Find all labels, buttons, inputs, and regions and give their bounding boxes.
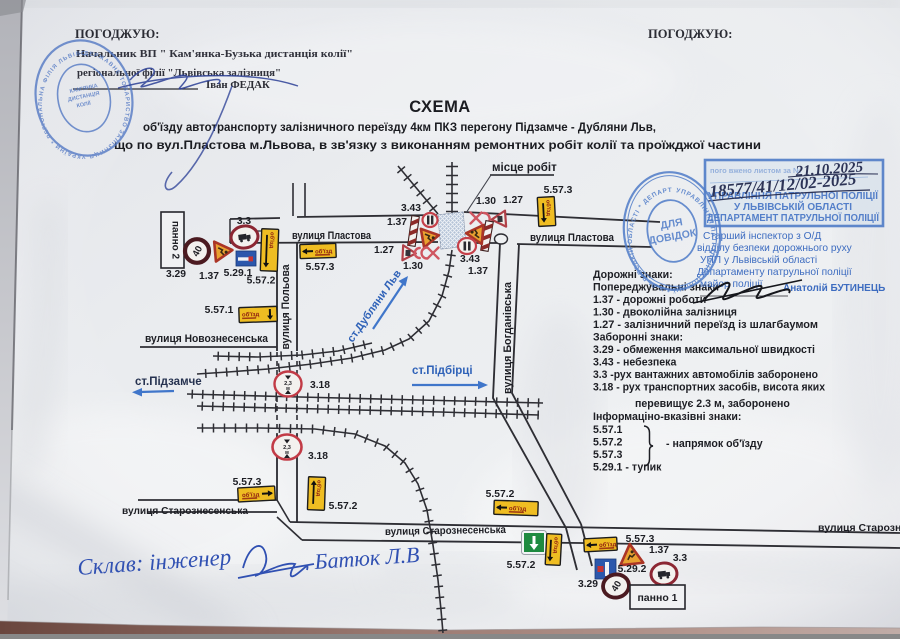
svg-text:5.29.1 - тупик: 5.29.1 - тупик <box>593 462 662 474</box>
svg-text:5.57.2: 5.57.2 <box>329 501 358 512</box>
svg-text:5.57.3: 5.57.3 <box>306 262 335 273</box>
svg-text:5.57.1: 5.57.1 <box>205 305 234 316</box>
svg-text:У ЛЬВІВСЬКІЙ ОБЛАСТІ: У ЛЬВІВСЬКІЙ ОБЛАСТІ <box>734 201 852 213</box>
svg-text:об'їзд: об'їзд <box>552 537 560 554</box>
svg-text:1.27: 1.27 <box>503 195 523 206</box>
svg-text:ст.Підзамче: ст.Підзамче <box>135 376 202 388</box>
svg-text:об'їзду автотранспорту залізн: об'їзду автотранспорту залізничного пере… <box>143 120 656 134</box>
svg-text:3.3: 3.3 <box>673 553 688 564</box>
svg-text:5.57.2: 5.57.2 <box>247 276 276 287</box>
svg-text:1.37: 1.37 <box>649 545 669 556</box>
svg-text:ДЕПАРТАМЕНТ ПАТРУЛЬНОЇ ПОЛІЦІЇ: ДЕПАРТАМЕНТ ПАТРУЛЬНОЇ ПОЛІЦІЇ <box>707 213 879 224</box>
svg-text:що по вул.Пластова м.Львова,: що по вул.Пластова м.Львова, в зв'язку з… <box>114 138 761 152</box>
svg-text:1.30: 1.30 <box>403 261 423 272</box>
svg-text:вулиця Польова: вулиця Польова <box>280 264 292 350</box>
svg-text:- напрямок об'їзду: - напрямок об'їзду <box>666 438 763 450</box>
svg-text:5.57.2: 5.57.2 <box>593 437 623 449</box>
svg-text:3.29: 3.29 <box>578 579 598 590</box>
svg-text:панно 1: панно 1 <box>637 592 677 604</box>
svg-text:3.29 - обмеження максимальної: 3.29 - обмеження максимальної швидкості <box>593 344 815 356</box>
svg-text:СХЕМА: СХЕМА <box>409 98 470 116</box>
svg-text:1.37: 1.37 <box>468 266 488 277</box>
svg-text:5.29.2: 5.29.2 <box>618 564 647 575</box>
svg-text:вулиця Пластова: вулиця Пластова <box>530 232 615 244</box>
svg-text:ПОГОДЖУЮ:: ПОГОДЖУЮ: <box>75 27 159 41</box>
svg-text:місце робіт: місце робіт <box>492 162 557 174</box>
svg-text:5.57.3: 5.57.3 <box>544 185 573 196</box>
svg-text:5.57.2: 5.57.2 <box>486 489 515 500</box>
svg-text:3.29: 3.29 <box>166 269 186 280</box>
svg-text:1.37: 1.37 <box>387 217 407 228</box>
svg-text:1.30: 1.30 <box>476 196 496 207</box>
svg-text:ПОГОДЖУЮ:: ПОГОДЖУЮ: <box>648 27 732 41</box>
svg-text:Анатолій БУТИНЕЦЬ: Анатолій БУТИНЕЦЬ <box>783 283 885 294</box>
svg-text:3.18: 3.18 <box>308 451 328 462</box>
svg-text:вулиця Старознесенська: вулиця Старознесенська <box>385 524 506 538</box>
svg-text:ст.Підбірці: ст.Підбірці <box>412 365 473 377</box>
svg-text:3.3 -рух вантажних автомобілів: 3.3 -рух вантажних автомобілів заборонен… <box>593 369 819 381</box>
svg-text:3.43: 3.43 <box>460 254 480 265</box>
svg-text:3.18 - рух транспортних засобі: 3.18 - рух транспортних засобів, висота … <box>593 382 825 394</box>
svg-text:об'їзд: об'їзд <box>315 480 323 497</box>
svg-text:1.37 - дорожні роботи: 1.37 - дорожні роботи <box>593 294 706 306</box>
svg-text:вулиця Пластова: вулиця Пластова <box>292 230 372 242</box>
svg-text:вулиця Богданівська: вулиця Богданівська <box>502 281 514 394</box>
svg-text:вулиця Старознесенська: вулиця Старознесенська <box>122 505 248 517</box>
svg-text:панно 2: панно 2 <box>170 221 181 260</box>
svg-text:пого вжено листом за №: пого вжено листом за № <box>710 166 801 175</box>
svg-text:5.57.1: 5.57.1 <box>593 424 623 436</box>
svg-text:Інформаціно-вказівні знаки:: Інформаціно-вказівні знаки: <box>593 411 741 423</box>
svg-text:перевищує 2.3 м, заборонено: перевищує 2.3 м, заборонено <box>635 398 790 410</box>
svg-text:вулиця Новознесенська: вулиця Новознесенська <box>145 333 269 345</box>
svg-text:5.57.2: 5.57.2 <box>507 560 536 571</box>
svg-text:1.27: 1.27 <box>374 245 394 256</box>
svg-text:Іван ФЕДАК: Іван ФЕДАК <box>206 79 270 91</box>
svg-text:Дорожні знаки:: Дорожні знаки: <box>593 269 673 281</box>
svg-text:5.57.3: 5.57.3 <box>593 449 623 461</box>
svg-text:3.18: 3.18 <box>310 380 330 391</box>
svg-text:1.37: 1.37 <box>199 271 219 282</box>
svg-text:Департаменту патрульної поліці: Департаменту патрульної поліції <box>697 267 852 278</box>
svg-text:об'їзд: об'їзд <box>544 200 552 217</box>
svg-text:вулиця Старознесенська: вулиця Старознесенська <box>818 522 900 534</box>
svg-text:Заборонні знаки:: Заборонні знаки: <box>593 332 683 344</box>
svg-text:об'їзд: об'їзд <box>268 232 276 249</box>
svg-text:3.43 - небезпека: 3.43 - небезпека <box>593 357 676 369</box>
svg-text:3.43: 3.43 <box>401 203 421 214</box>
svg-text:1.27 - залізничний переїзд із: 1.27 - залізничний переїзд із шлагбаумом <box>593 319 818 331</box>
svg-text:1.30 - двоколійна залізниця: 1.30 - двоколійна залізниця <box>593 307 737 319</box>
